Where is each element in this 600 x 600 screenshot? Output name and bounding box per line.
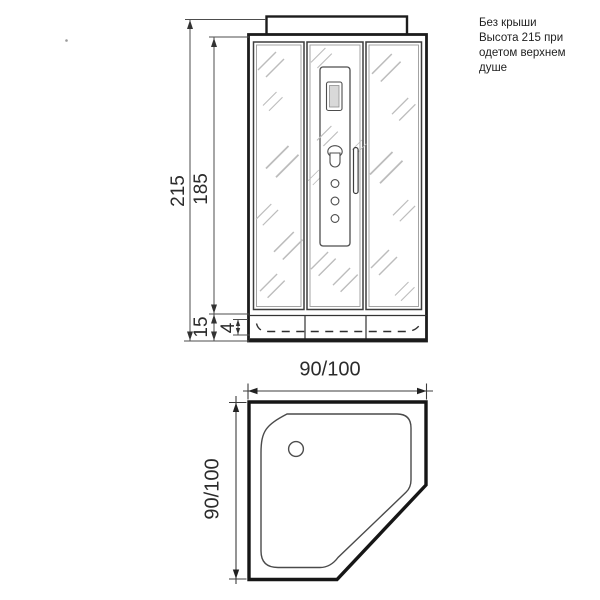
dimension-plan-depth — [229, 396, 247, 584]
dim-label-rim-height: 4 — [218, 323, 240, 334]
dim-label-tray-height: 15 — [191, 316, 213, 337]
dim-label-plan-depth: 90/100 — [202, 458, 225, 519]
dim-label-plan-width: 90/100 — [299, 359, 360, 382]
dim-label-glass-height: 185 — [191, 173, 213, 205]
technical-drawing-canvas: Без крыши Высота 215 при одетом верхнем … — [0, 0, 600, 600]
shower-cabin-front-view — [184, 17, 427, 342]
door-handle — [354, 148, 359, 194]
tray-inner-edge — [261, 414, 411, 568]
print-speck — [65, 39, 68, 42]
shower-cabin-drawing — [0, 0, 600, 600]
hydromassage-jets — [331, 180, 339, 223]
hand-shower-icon — [328, 146, 342, 167]
display-screen — [327, 82, 343, 111]
shower-tray-plan-view — [229, 384, 433, 585]
drain-icon — [289, 442, 304, 457]
note-text: Без крыши Высота 215 при одетом верхнем … — [479, 16, 579, 76]
glass-panel-right — [366, 42, 422, 310]
dimension-plan-width — [243, 384, 433, 400]
dimension-185-15 — [209, 37, 249, 341]
roof-panel — [267, 17, 408, 36]
glass-panel-left — [254, 42, 305, 310]
dim-label-total-height: 215 — [168, 175, 190, 207]
